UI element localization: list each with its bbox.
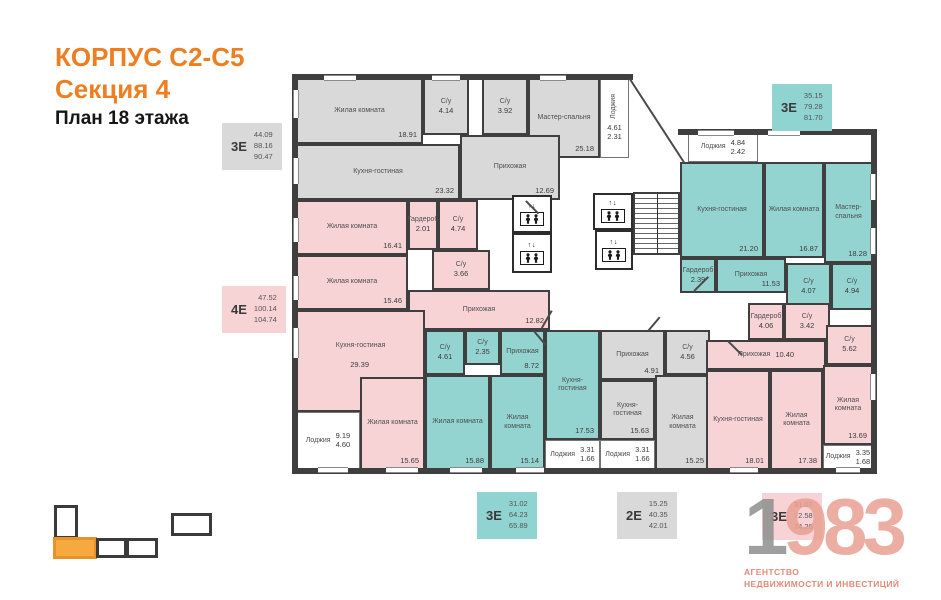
room-name: Жилая комната bbox=[367, 419, 418, 427]
room-area: 25.18 bbox=[575, 145, 594, 154]
room-area: 4.56 bbox=[680, 353, 695, 362]
apartment-badge-3e-teal-top: 3Е 35.1579.2881.70 bbox=[772, 84, 832, 131]
area-value: 42.01 bbox=[649, 521, 668, 532]
room-name: Жилая комната bbox=[327, 278, 378, 286]
page-header: КОРПУС С2-С5 Секция 4 План 18 этажа bbox=[55, 42, 244, 130]
room-areas: 9.194.60 bbox=[336, 432, 351, 449]
room-name: С/у bbox=[440, 344, 451, 352]
window bbox=[516, 467, 544, 473]
room-name: Гардероб bbox=[408, 216, 439, 224]
room-name: Жилая комната bbox=[769, 206, 820, 214]
room-bathroom: С/у4.74 bbox=[438, 200, 478, 250]
room-area: 4.14 bbox=[439, 107, 454, 116]
room-name: Мастер-спальня bbox=[828, 204, 869, 220]
window bbox=[730, 467, 758, 473]
apartment-badge-2e-gray: 2Е 15.2540.3542.01 bbox=[617, 492, 677, 539]
room-area: 15.88 bbox=[465, 457, 484, 466]
window bbox=[698, 130, 734, 136]
room-area: 12.82 bbox=[525, 317, 544, 326]
room-name: С/у bbox=[441, 98, 452, 106]
apartment-badge-3e-teal-bottom: 3Е 31.0264.2365.89 bbox=[477, 492, 537, 539]
room-name: Жилая комната bbox=[827, 397, 869, 413]
room-name: Кухня-гостиная bbox=[604, 402, 651, 418]
room-living: Жилая комната16.87 bbox=[764, 162, 824, 258]
room-area: 21.20 bbox=[739, 245, 758, 254]
area-value: 35.15 bbox=[804, 91, 823, 102]
room-area-2: 2.31 bbox=[607, 133, 622, 142]
area-value: 90.47 bbox=[254, 152, 273, 163]
room-name: Гардероб bbox=[683, 267, 714, 275]
room-name: Прихожая bbox=[506, 348, 538, 356]
room-name: Лоджия bbox=[550, 451, 575, 459]
room-name: Прихожая bbox=[463, 306, 495, 314]
logo-tagline-line2: НЕДВИЖИМОСТИ И ИНВЕСТИЦИЙ bbox=[744, 578, 929, 591]
room-kitchen-living: Кухня-гостиная17.53 bbox=[545, 330, 600, 440]
apartment-areas: 15.2540.3542.01 bbox=[649, 499, 668, 532]
wall-chamfer bbox=[629, 78, 685, 163]
room-living: Жилая комната13.69 bbox=[823, 365, 873, 445]
room-area: 17.53 bbox=[575, 427, 594, 436]
room-areas: 4.612.31 bbox=[607, 124, 622, 141]
room-area-2: 1.66 bbox=[635, 455, 650, 464]
room-bathroom: С/у4.14 bbox=[423, 78, 469, 135]
logo-digit-1: 1 bbox=[744, 482, 784, 571]
apartment-code: 3Е bbox=[781, 100, 797, 115]
window bbox=[432, 75, 460, 81]
apartment-code: 4Е bbox=[231, 302, 247, 317]
area-value: 88.16 bbox=[254, 141, 273, 152]
room-area: 17.38 bbox=[798, 457, 817, 466]
room-hallway: Прихожая12.69 bbox=[460, 135, 560, 200]
room-living: Жилая комната15.14 bbox=[490, 375, 545, 470]
window bbox=[293, 328, 299, 358]
staircase bbox=[633, 192, 680, 255]
apartment-areas: 35.1579.2881.70 bbox=[804, 91, 823, 124]
area-value: 79.28 bbox=[804, 102, 823, 113]
window bbox=[870, 374, 876, 400]
room-area: 15.65 bbox=[400, 457, 419, 466]
room-name: Лоджия bbox=[306, 437, 331, 445]
room-wardrobe: Гардероб4.06 bbox=[748, 303, 784, 340]
room-name: С/у bbox=[844, 336, 855, 344]
room-name: Кухня-гостиная bbox=[353, 168, 403, 176]
elevator-arrows-icon: ↑↓ bbox=[609, 200, 618, 207]
room-name: Лоджия bbox=[605, 451, 630, 459]
room-name: С/у bbox=[847, 278, 858, 286]
room-loggia: Лоджия3.311.66 bbox=[545, 440, 600, 470]
window bbox=[870, 228, 876, 254]
room-name: Кухня-гостиная bbox=[336, 342, 386, 350]
area-value: 44.09 bbox=[254, 130, 273, 141]
area-value: 104.74 bbox=[254, 315, 277, 326]
room-area: 2.01 bbox=[416, 225, 431, 234]
elevator-people-icon bbox=[601, 209, 625, 223]
room-area: 2.35 bbox=[475, 348, 490, 357]
elevator-arrows-icon: ↑↓ bbox=[528, 242, 537, 249]
area-value: 15.25 bbox=[649, 499, 668, 510]
room-area: 4.61 bbox=[438, 353, 453, 362]
room-name: Кухня-гостиная bbox=[697, 206, 747, 214]
area-value: 40.35 bbox=[649, 510, 668, 521]
apartment-areas: 44.0988.1690.47 bbox=[254, 130, 273, 163]
elevator: ↑↓ bbox=[593, 193, 633, 230]
room-bathroom: С/у5.62 bbox=[826, 325, 873, 365]
room-loggia: Лоджия4.842.42 bbox=[688, 133, 758, 162]
room-name: С/у bbox=[456, 261, 467, 269]
window bbox=[540, 75, 566, 81]
room-hallway: Прихожая12.82 bbox=[408, 290, 550, 330]
room-kitchen-living: Кухня-гостиная18.01 bbox=[706, 370, 770, 470]
room-name: Жилая комната bbox=[494, 414, 541, 430]
room-name: С/у bbox=[682, 344, 693, 352]
building-title: КОРПУС С2-С5 bbox=[55, 42, 244, 74]
room-area-2: 1.68 bbox=[856, 458, 871, 467]
apartment-badge-4e-pink: 4Е 47.52100.14104.74 bbox=[222, 286, 286, 333]
room-name: Лоджия bbox=[610, 94, 618, 119]
elevator-arrows-icon: ↑↓ bbox=[610, 239, 619, 246]
room-area: 4.94 bbox=[845, 287, 860, 296]
outer-wall bbox=[292, 468, 877, 474]
room-living: Жилая комната15.25 bbox=[655, 375, 710, 470]
room-area: 15.14 bbox=[520, 457, 539, 466]
room-name: Прихожая bbox=[616, 351, 648, 359]
section-title: Секция 4 bbox=[55, 74, 244, 106]
room-name: Жилая комната bbox=[327, 223, 378, 231]
area-value: 64.23 bbox=[509, 510, 528, 521]
room-name: Кухня-гостиная bbox=[549, 377, 596, 393]
room-living: Жилая комната15.46 bbox=[296, 255, 408, 310]
window bbox=[450, 467, 482, 473]
window bbox=[768, 130, 800, 136]
room-bathroom: С/у3.66 bbox=[432, 250, 490, 290]
floor-plan: Жилая комната18.91 С/у4.14 С/у3.92 Масте… bbox=[296, 78, 877, 470]
room-area: 4.06 bbox=[759, 322, 774, 331]
room-living: Жилая комната18.91 bbox=[296, 78, 423, 144]
room-name: Жилая комната bbox=[432, 418, 483, 426]
room-bathroom: С/у3.92 bbox=[482, 78, 528, 135]
room-area: 10.40 bbox=[775, 351, 794, 360]
apartment-code: 3Е bbox=[231, 139, 247, 154]
apartment-code: 3Е bbox=[486, 508, 502, 523]
room-name: Мастер-спальня bbox=[537, 114, 590, 122]
room-master-bedroom: Мастер-спальня18.28 bbox=[824, 162, 873, 263]
room-area: 18.91 bbox=[398, 131, 417, 140]
room-bathroom: С/у4.94 bbox=[831, 263, 873, 310]
room-name: Жилая комната bbox=[659, 414, 706, 430]
elevator-people-icon bbox=[520, 212, 544, 226]
room-area-2: 2.42 bbox=[731, 148, 746, 157]
room-name: С/у bbox=[477, 339, 488, 347]
room-hallway: Прихожая4.91 bbox=[600, 330, 665, 380]
room-area: 15.63 bbox=[630, 427, 649, 436]
window bbox=[386, 467, 418, 473]
room-areas: 3.311.66 bbox=[635, 446, 650, 463]
room-area: 23.32 bbox=[435, 187, 454, 196]
room-name: Прихожая bbox=[735, 271, 767, 279]
window bbox=[870, 174, 876, 200]
room-bathroom: С/у4.56 bbox=[665, 330, 710, 375]
room-area: 13.69 bbox=[848, 432, 867, 441]
room-kitchen-living: Кухня-гостиная15.63 bbox=[600, 380, 655, 440]
window bbox=[318, 467, 348, 473]
room-area: 18.28 bbox=[848, 250, 867, 259]
room-areas: 4.842.42 bbox=[731, 139, 746, 156]
room-area: 4.74 bbox=[451, 225, 466, 234]
room-living: Жилая комната17.38 bbox=[770, 370, 823, 470]
room-name: Прихожая bbox=[494, 163, 526, 171]
area-value: 65.89 bbox=[509, 521, 528, 532]
window bbox=[293, 90, 299, 118]
room-area: 4.07 bbox=[801, 287, 816, 296]
room-area: 16.87 bbox=[799, 245, 818, 254]
room-area: 5.62 bbox=[842, 345, 857, 354]
window bbox=[293, 218, 299, 242]
key-plan-section bbox=[54, 505, 78, 539]
room-name: С/у bbox=[803, 278, 814, 286]
apartment-areas: 31.0264.2365.89 bbox=[509, 499, 528, 532]
window bbox=[324, 75, 356, 81]
room-hallway: Прихожая11.53 bbox=[716, 258, 786, 293]
room-kitchen-living: Кухня-гостиная21.20 bbox=[680, 162, 764, 258]
apartment-areas: 47.52100.14104.74 bbox=[254, 293, 277, 326]
key-plan-section bbox=[126, 538, 158, 558]
room-bathroom: С/у4.61 bbox=[425, 330, 465, 375]
room-name: Лоджия bbox=[701, 143, 726, 151]
room-name: С/у bbox=[500, 98, 511, 106]
area-value: 31.02 bbox=[509, 499, 528, 510]
floor-title: План 18 этажа bbox=[55, 108, 244, 130]
room-area: 16.41 bbox=[383, 242, 402, 251]
room-area: 3.42 bbox=[800, 322, 815, 331]
room-hallway: Прихожая10.40 bbox=[706, 340, 826, 370]
room-area: 3.92 bbox=[498, 107, 513, 116]
room-bathroom: С/у2.35 bbox=[465, 330, 500, 365]
elevator-people-icon bbox=[602, 248, 626, 262]
room-area: 29.39 bbox=[350, 361, 369, 370]
room-areas: 3.351.68 bbox=[856, 449, 871, 466]
window bbox=[293, 158, 299, 184]
room-kitchen-living: Кухня-гостиная23.32 bbox=[296, 144, 460, 200]
room-name: Гардероб bbox=[751, 313, 782, 321]
room-living: Жилая комната15.65 bbox=[360, 377, 425, 470]
room-area: 11.53 bbox=[762, 280, 780, 289]
window bbox=[836, 467, 860, 473]
apartment-badge-3e-gray: 3Е 44.0988.1690.47 bbox=[222, 123, 282, 170]
floor-plan-page: КОРПУС С2-С5 Секция 4 План 18 этажа Жила… bbox=[0, 0, 941, 600]
outer-wall bbox=[292, 74, 298, 474]
room-name: Прихожая bbox=[738, 351, 770, 359]
room-name: Жилая комната bbox=[774, 412, 819, 428]
apartment-code: 2Е bbox=[626, 508, 642, 523]
room-living: Жилая комната16.41 bbox=[296, 200, 408, 255]
room-loggia: Лоджия4.612.31 bbox=[600, 78, 629, 158]
key-plan-section bbox=[171, 513, 212, 536]
room-wardrobe: Гардероб2.01 bbox=[408, 200, 438, 250]
room-name: Кухня-гостиная bbox=[713, 416, 763, 424]
room-area-2: 1.66 bbox=[580, 455, 595, 464]
room-area: 15.46 bbox=[383, 297, 402, 306]
area-value: 81.70 bbox=[804, 113, 823, 124]
elevator-people-icon bbox=[520, 251, 544, 265]
room-area: 8.72 bbox=[524, 362, 539, 371]
window bbox=[293, 276, 299, 300]
room-loggia: Лоджия9.194.60 bbox=[296, 412, 360, 470]
area-value: 47.52 bbox=[254, 293, 277, 304]
room-area: 15.25 bbox=[685, 457, 704, 466]
agency-logo: 1983 АГЕНТСТВО НЕДВИЖИМОСТИ И ИНВЕСТИЦИЙ bbox=[744, 490, 929, 591]
room-area: 18.01 bbox=[745, 457, 764, 466]
key-plan-current-section bbox=[53, 537, 97, 559]
area-value: 100.14 bbox=[254, 304, 277, 315]
elevator: ↑↓ bbox=[512, 233, 552, 273]
room-name: Лоджия bbox=[826, 453, 851, 461]
elevator: ↑↓ bbox=[595, 230, 633, 270]
room-area: 3.66 bbox=[454, 270, 469, 279]
room-name: С/у bbox=[453, 216, 464, 224]
room-areas: 3.311.66 bbox=[580, 446, 595, 463]
logo-year: 1983 bbox=[744, 490, 929, 564]
room-living: Жилая комната15.88 bbox=[425, 375, 490, 470]
room-bathroom: С/у3.42 bbox=[784, 303, 830, 340]
logo-digits-983: 983 bbox=[784, 482, 902, 571]
room-area-2: 4.60 bbox=[336, 441, 351, 450]
room-name: С/у bbox=[802, 313, 813, 321]
room-loggia: Лоджия3.311.66 bbox=[600, 440, 655, 470]
room-areas: 10.40 bbox=[775, 351, 794, 360]
elevator: ↑↓ bbox=[512, 195, 552, 233]
key-plan-section bbox=[96, 538, 127, 558]
room-name: Жилая комната bbox=[334, 107, 385, 115]
